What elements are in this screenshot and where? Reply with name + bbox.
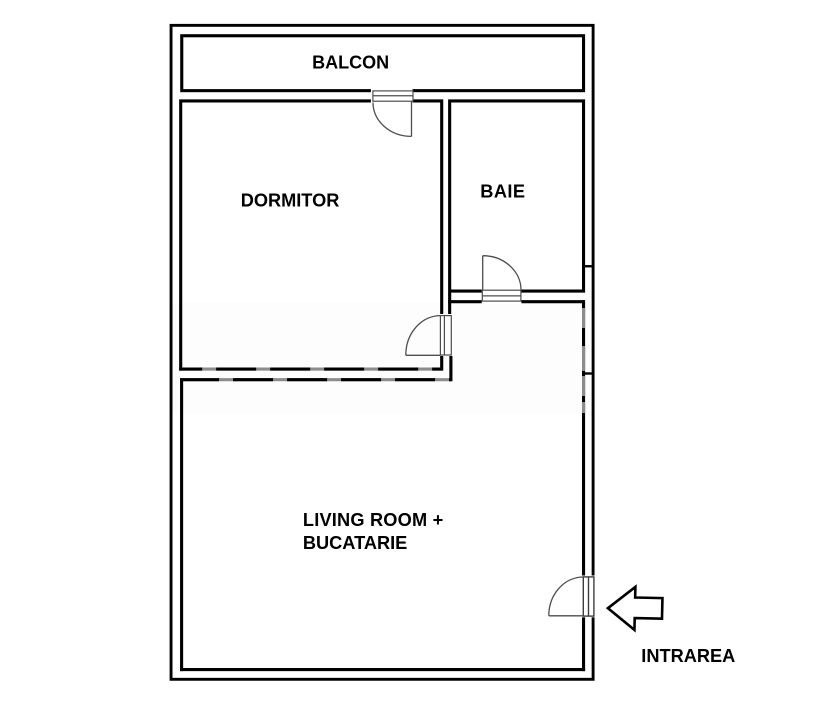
svg-text:INTRAREA: INTRAREA (641, 646, 735, 666)
svg-text:BALCON: BALCON (312, 53, 389, 73)
svg-text:LIVING ROOM +: LIVING ROOM + (303, 510, 444, 530)
svg-text:BUCATARIE: BUCATARIE (303, 533, 407, 553)
svg-text:DORMITOR: DORMITOR (241, 191, 340, 211)
svg-text:BAIE: BAIE (480, 181, 525, 201)
